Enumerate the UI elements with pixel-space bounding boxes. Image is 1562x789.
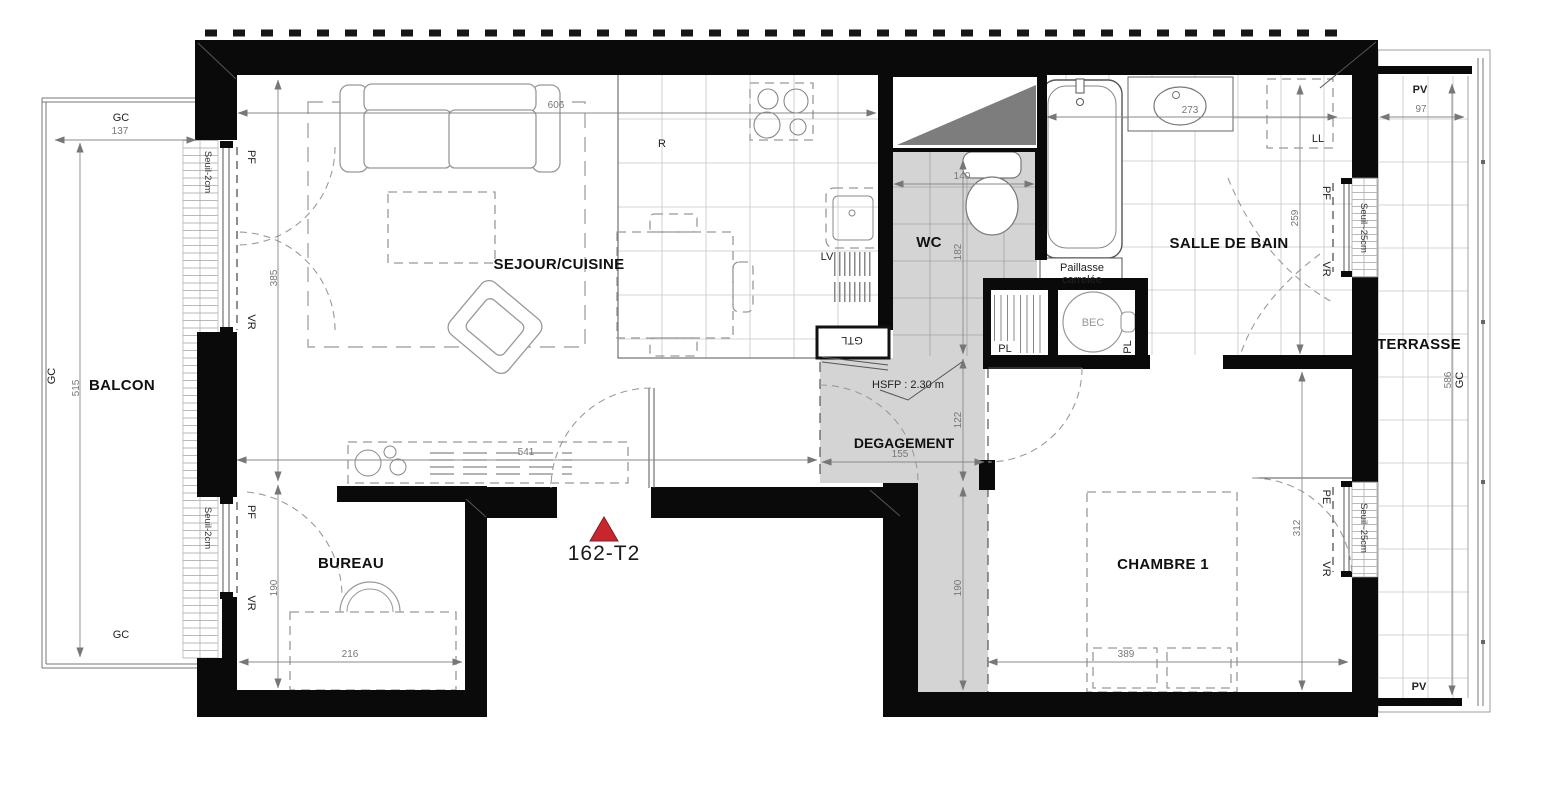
dim-bain-w: 273 <box>1182 105 1199 116</box>
bec-label: BEC <box>1082 317 1105 329</box>
wall <box>983 290 991 356</box>
wall-bath-chambre <box>1223 355 1352 369</box>
vr-label: VR <box>1320 561 1332 576</box>
wall <box>197 332 237 497</box>
seuil-label: Seuil-2cm <box>202 507 213 549</box>
vr-label: VR <box>245 595 257 610</box>
unit-label: 162-T2 <box>568 542 641 565</box>
gtl-label: GTL <box>841 334 862 346</box>
terrace-bottom-edge <box>1376 698 1462 706</box>
terrace-railing <box>1478 58 1483 706</box>
fridge-label: R <box>658 138 666 150</box>
desk <box>290 612 456 690</box>
dim-terrasse-h: 586 <box>1443 371 1454 388</box>
wall <box>979 460 995 490</box>
seuil-label: Seuil-2cm <box>202 151 213 193</box>
window-bureau <box>220 497 237 599</box>
room-label-bain: SALLE DE BAIN <box>1170 235 1289 252</box>
wall-east <box>1352 40 1378 178</box>
armchair <box>444 277 546 378</box>
room-label-balcon: BALCON <box>89 377 155 394</box>
dim-chambre-w: 389 <box>1118 649 1135 660</box>
wall <box>983 355 1150 369</box>
sideboard <box>348 442 628 483</box>
window-chambre <box>1333 481 1377 577</box>
washing-machine-label: LL <box>1312 133 1324 145</box>
window-bath <box>1333 178 1377 277</box>
hsfp-note: HSFP : 2.30 m <box>872 379 944 391</box>
dim-sejour-h: 385 <box>269 269 280 286</box>
wall <box>222 597 237 658</box>
closet-label: PL <box>998 343 1011 355</box>
dim-terrasse-w: 97 <box>1415 104 1427 115</box>
dim-bain-h: 259 <box>1290 209 1301 226</box>
entry-door <box>551 388 654 488</box>
chambre-door-swing <box>988 368 1082 462</box>
wall <box>651 487 883 518</box>
gc-label: GC <box>113 629 130 641</box>
window-sejour <box>220 141 237 334</box>
desk-chair <box>340 582 400 612</box>
gc-label: GC <box>1454 372 1466 389</box>
sofa <box>340 84 560 172</box>
wall <box>883 483 918 697</box>
coffee-table <box>388 192 495 263</box>
pf-label: PF <box>245 150 257 164</box>
closet-label-2: PL <box>1122 340 1134 353</box>
dim-deg-w: 155 <box>892 449 909 460</box>
floor-plan-162-T2: BALCON SEJOUR/CUISINE BUREAU WC SALLE DE… <box>0 0 1562 789</box>
dim-bureau-w: 216 <box>342 649 359 660</box>
room-label-sejour: SEJOUR/CUISINE <box>494 256 625 273</box>
dim-balcon-w: 137 <box>112 126 129 137</box>
room-label-terrasse: TERRASSE <box>1377 336 1461 353</box>
bath-door-swing <box>1240 254 1320 356</box>
wall-north <box>195 40 1378 75</box>
dim-balcon-h: 515 <box>71 379 82 396</box>
washbasin <box>1128 77 1233 131</box>
dim-sejour-w: 606 <box>548 100 565 111</box>
pf-label: PF <box>1320 186 1332 200</box>
toilet-tank <box>963 152 1021 178</box>
wall <box>195 40 237 140</box>
wall <box>467 487 557 518</box>
gc-label: GC <box>113 112 130 124</box>
pv-label: PV <box>1412 681 1427 693</box>
paillasse-label-1: Paillasse <box>1060 262 1104 274</box>
room-label-chambre: CHAMBRE 1 <box>1117 556 1209 573</box>
wall <box>465 486 487 717</box>
unit-marker-triangle <box>590 517 618 541</box>
bureau-door-swing <box>247 492 342 597</box>
seuil-label: Seuil~25cm <box>1358 503 1369 553</box>
dim-bureau-h: 190 <box>269 579 280 596</box>
dishwasher-label: LV <box>821 251 834 263</box>
wall-south <box>883 692 1378 717</box>
pe-label: PE <box>1320 490 1332 505</box>
vr-label: VR <box>1320 261 1332 276</box>
room-label-wc: WC <box>916 234 942 251</box>
dim-wc-w: 140 <box>954 171 971 182</box>
wall-east <box>1352 277 1378 482</box>
pv-label: PV <box>1413 84 1428 96</box>
dim-couloir-h: 190 <box>953 579 964 596</box>
pillow <box>1167 648 1231 688</box>
wall <box>1135 285 1148 365</box>
seuil-label: Seuil~25cm <box>1358 203 1369 253</box>
bathtub <box>1042 79 1122 258</box>
technical-shaft <box>891 75 1039 150</box>
terrace-top-edge <box>1376 66 1472 74</box>
wall <box>337 486 467 502</box>
wall-bureau-south <box>197 690 487 717</box>
vr-label: VR <box>245 314 257 329</box>
toilet-bowl <box>966 177 1018 235</box>
wall <box>1048 285 1058 358</box>
terrace <box>1376 50 1490 712</box>
pf-label: PF <box>245 505 257 519</box>
gc-label: GC <box>46 368 58 385</box>
dim-chambre-h: 312 <box>1292 519 1303 536</box>
dim-wc-h: 182 <box>953 243 964 260</box>
wall-east <box>1352 577 1378 717</box>
paillasse-label-2: carrelée <box>1062 274 1102 286</box>
room-label-bureau: BUREAU <box>318 555 384 572</box>
dim-sejour-w2: 541 <box>518 447 535 458</box>
dim-deg-h: 122 <box>953 411 964 428</box>
